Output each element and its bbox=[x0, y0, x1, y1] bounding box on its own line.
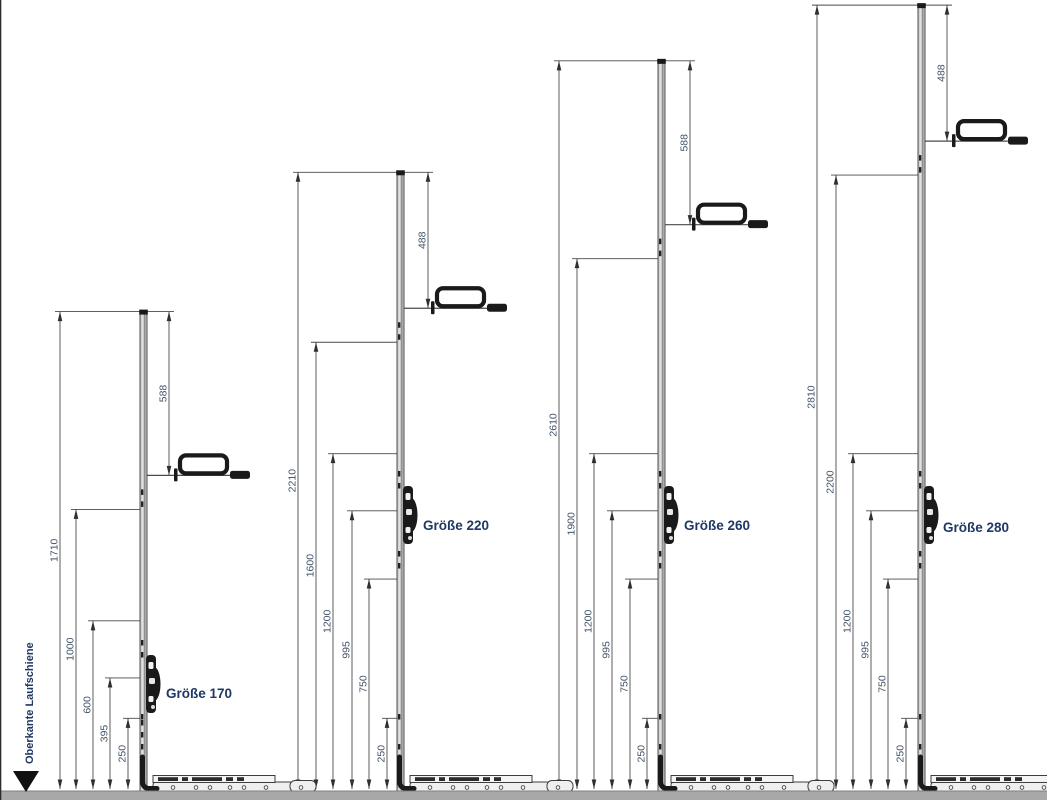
rail-pin bbox=[398, 471, 400, 477]
rail-pin bbox=[398, 714, 400, 720]
arrowhead-icon bbox=[645, 718, 650, 728]
arrowhead-icon bbox=[58, 312, 63, 322]
rail-pin bbox=[659, 563, 661, 569]
dimension-value: 750 bbox=[619, 675, 631, 693]
arrowhead-icon bbox=[367, 579, 372, 589]
carriage-end-roller bbox=[808, 781, 834, 793]
rail-pin bbox=[919, 563, 921, 569]
arrowhead-icon bbox=[91, 780, 96, 790]
handle-grip-loop bbox=[180, 455, 227, 473]
rail-pin bbox=[141, 489, 143, 495]
arrowhead-icon bbox=[91, 621, 96, 631]
arrowhead-icon bbox=[108, 780, 113, 790]
dimension-value: 1200 bbox=[842, 610, 854, 634]
arrowhead-icon bbox=[126, 718, 131, 728]
arrowhead-icon bbox=[426, 172, 431, 182]
arrowhead-icon bbox=[945, 132, 950, 142]
dimension-value: 250 bbox=[895, 745, 907, 763]
rail-pin bbox=[141, 732, 143, 738]
dimension-value: 250 bbox=[636, 745, 648, 763]
dimension-value: 750 bbox=[877, 675, 889, 693]
handle-grip-loop bbox=[437, 288, 484, 306]
axle-dot bbox=[208, 786, 212, 790]
handle-grip-loop bbox=[958, 121, 1005, 139]
dimension-value: 1900 bbox=[566, 512, 578, 536]
dimension-value: 995 bbox=[601, 641, 613, 659]
arrowhead-icon bbox=[592, 780, 597, 790]
arrowhead-icon bbox=[331, 454, 336, 464]
rail-pin bbox=[659, 744, 661, 750]
arrowhead-icon bbox=[350, 780, 355, 790]
dimension-value: 2610 bbox=[548, 413, 560, 437]
size-label-280: Größe 280 bbox=[943, 520, 1009, 535]
axle-dot bbox=[499, 786, 503, 790]
arrowhead-icon bbox=[645, 780, 650, 790]
handle-end-cap bbox=[1008, 137, 1028, 145]
axle-dot bbox=[242, 786, 246, 790]
arrowhead-icon bbox=[296, 172, 301, 182]
arrowhead-icon bbox=[688, 61, 693, 70]
roller-carriage-graphic bbox=[921, 757, 1047, 795]
rail-pin bbox=[659, 551, 661, 557]
dimension-value: 250 bbox=[376, 745, 388, 763]
roller-carriage-graphic bbox=[400, 757, 574, 795]
axle-dot bbox=[1006, 786, 1010, 790]
arrowhead-icon bbox=[610, 511, 615, 521]
axle-dot bbox=[299, 786, 303, 790]
dimensions-layer: 1710100060039525058822101600120099575025… bbox=[49, 5, 953, 789]
reference-label: Oberkante Laufschiene bbox=[24, 642, 36, 764]
axle-dot bbox=[1020, 786, 1024, 790]
arrowhead-icon bbox=[426, 299, 431, 309]
rail-pin bbox=[141, 501, 143, 507]
dimension-value: 1710 bbox=[49, 538, 61, 562]
roller-carriage-graphic bbox=[143, 757, 317, 795]
handle-neck bbox=[431, 301, 435, 314]
axle-dot bbox=[465, 786, 469, 790]
rail-pin bbox=[141, 714, 143, 720]
guide-rail bbox=[917, 3, 926, 791]
arrowhead-icon bbox=[331, 780, 336, 790]
rail-pin bbox=[141, 720, 143, 726]
axle-dot bbox=[817, 786, 821, 790]
handle-graphic bbox=[404, 288, 507, 314]
hardware-layer bbox=[139, 3, 1047, 795]
arrowhead-icon bbox=[575, 259, 580, 269]
arrowhead-icon bbox=[575, 780, 580, 790]
size-label-220: Größe 220 bbox=[423, 518, 489, 533]
arrowhead-icon bbox=[610, 780, 615, 790]
dimension-value: 588 bbox=[679, 134, 691, 152]
handle-end-cap bbox=[748, 220, 768, 228]
arrowhead-icon bbox=[367, 780, 372, 790]
dimension-value: 2200 bbox=[825, 470, 837, 494]
arrowhead-icon bbox=[834, 175, 839, 185]
rail-pin bbox=[398, 483, 400, 489]
rail-pin bbox=[398, 563, 400, 569]
axle-dot bbox=[264, 786, 268, 790]
page-border-left bbox=[0, 0, 1, 800]
arrowhead-icon bbox=[628, 780, 633, 790]
axle-dot bbox=[726, 786, 730, 790]
arrowhead-icon bbox=[350, 511, 355, 521]
rail-pin bbox=[398, 551, 400, 557]
arrowhead-icon bbox=[385, 780, 390, 790]
rail-pin bbox=[919, 551, 921, 557]
rail-pin bbox=[919, 471, 921, 477]
handle-graphic bbox=[147, 455, 250, 481]
rail-pin bbox=[919, 744, 921, 750]
axle-dot bbox=[949, 786, 953, 790]
axle-dot bbox=[689, 786, 693, 790]
handle-end-cap bbox=[487, 304, 507, 312]
rail-pin bbox=[919, 483, 921, 489]
rail-top-cap bbox=[917, 3, 926, 8]
rail-pin bbox=[398, 322, 400, 328]
arrowhead-icon bbox=[58, 780, 63, 790]
rail-pin bbox=[398, 744, 400, 750]
axle-dot bbox=[428, 786, 432, 790]
handle-grip-loop bbox=[698, 205, 745, 223]
axle-dot bbox=[556, 786, 560, 790]
running-rail-bar bbox=[0, 791, 1047, 800]
hardware-dimension-drawing: 1710100060039525058822101600120099575025… bbox=[0, 0, 1047, 800]
handle-graphic bbox=[665, 205, 768, 231]
axle-dot bbox=[760, 786, 764, 790]
arrowhead-icon bbox=[628, 579, 633, 589]
handle-neck bbox=[692, 218, 696, 231]
gearbox-graphic bbox=[403, 486, 418, 544]
dimension-value: 588 bbox=[158, 385, 170, 403]
guide-rail bbox=[396, 170, 405, 791]
rail-pin bbox=[919, 714, 921, 720]
handle-end-cap bbox=[230, 471, 250, 479]
rail-top-cap bbox=[139, 310, 148, 315]
dimension-value: 1000 bbox=[65, 637, 77, 661]
rail-pin bbox=[398, 334, 400, 340]
axle-dot bbox=[171, 786, 175, 790]
axle-dot bbox=[485, 786, 489, 790]
arrowhead-icon bbox=[74, 780, 79, 790]
guide-rail bbox=[657, 59, 666, 791]
dimension-value: 995 bbox=[860, 641, 872, 659]
dimension-value: 395 bbox=[99, 725, 111, 743]
dimension-value: 750 bbox=[358, 675, 370, 693]
arrowhead-icon bbox=[126, 780, 131, 790]
dimension-value: 2810 bbox=[806, 385, 818, 409]
arrowhead-icon bbox=[904, 718, 909, 728]
arrowhead-icon bbox=[886, 780, 891, 790]
handle-graphic bbox=[925, 121, 1028, 147]
axle-dot bbox=[746, 786, 750, 790]
dimension-value: 1600 bbox=[305, 554, 317, 578]
size-label-170: Größe 170 bbox=[166, 686, 232, 701]
dimension-value: 488 bbox=[417, 231, 429, 249]
arrowhead-icon bbox=[851, 780, 856, 790]
dimension-value: 995 bbox=[341, 641, 353, 659]
arrowhead-icon bbox=[592, 454, 597, 464]
carriage-end-roller bbox=[547, 781, 573, 793]
axle-dot bbox=[782, 786, 786, 790]
arrowhead-icon bbox=[314, 342, 319, 352]
rail-pin bbox=[141, 640, 143, 646]
gearbox-graphic bbox=[924, 486, 939, 544]
axle-dot bbox=[986, 786, 990, 790]
arrowhead-icon bbox=[688, 215, 693, 225]
arrowhead-icon bbox=[108, 678, 113, 688]
arrowhead-icon bbox=[851, 454, 856, 464]
axle-dot bbox=[1042, 786, 1046, 790]
arrowhead-icon bbox=[815, 5, 820, 15]
drawing-page: 1710100060039525058822101600120099575025… bbox=[0, 0, 1047, 800]
rail-pin bbox=[659, 251, 661, 257]
rail-pin bbox=[141, 744, 143, 750]
roller-carriage-graphic bbox=[661, 757, 835, 795]
size-label-260: Größe 260 bbox=[684, 518, 750, 533]
rail-pin bbox=[659, 239, 661, 245]
arrowhead-icon bbox=[74, 509, 79, 519]
axle-dot bbox=[228, 786, 232, 790]
arrowhead-icon bbox=[167, 312, 172, 322]
reference-triangle-icon bbox=[13, 771, 39, 792]
dimension-value: 2210 bbox=[287, 469, 299, 493]
rail-pin bbox=[659, 714, 661, 720]
axle-dot bbox=[451, 786, 455, 790]
arrowhead-icon bbox=[886, 579, 891, 589]
rail-top-cap bbox=[396, 170, 405, 175]
axle-dot bbox=[194, 786, 198, 790]
rail-pin bbox=[659, 471, 661, 477]
rail-pin bbox=[919, 167, 921, 173]
rail-top-cap bbox=[657, 59, 666, 64]
arrowhead-icon bbox=[167, 466, 172, 476]
dimension-value: 600 bbox=[82, 696, 94, 714]
axle-dot bbox=[712, 786, 716, 790]
arrowhead-icon bbox=[904, 780, 909, 790]
arrowhead-icon bbox=[869, 511, 874, 521]
rail-pin bbox=[659, 483, 661, 489]
rail-pin bbox=[141, 652, 143, 658]
guide-rail bbox=[139, 310, 148, 791]
arrowhead-icon bbox=[869, 780, 874, 790]
arrowhead-icon bbox=[557, 61, 562, 70]
rail-pin bbox=[919, 155, 921, 161]
dimension-value: 1200 bbox=[322, 610, 334, 634]
dimension-value: 250 bbox=[117, 745, 129, 763]
handle-neck bbox=[174, 468, 178, 481]
dimension-value: 1200 bbox=[583, 610, 595, 634]
axle-dot bbox=[521, 786, 525, 790]
dimension-value: 488 bbox=[936, 64, 948, 82]
handle-neck bbox=[952, 134, 956, 147]
gearbox-graphic bbox=[146, 655, 161, 713]
arrowhead-icon bbox=[945, 5, 950, 15]
gearbox-graphic bbox=[664, 486, 679, 544]
axle-dot bbox=[972, 786, 976, 790]
arrowhead-icon bbox=[385, 718, 390, 728]
carriage-end-roller bbox=[290, 781, 316, 793]
